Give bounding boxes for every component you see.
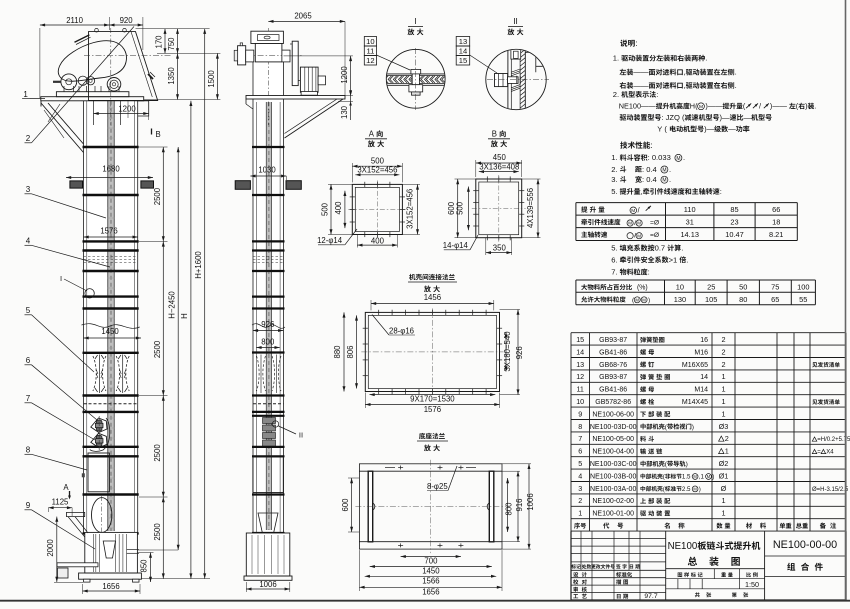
svg-text:14: 14 — [576, 347, 584, 356]
svg-text:M: M — [642, 297, 646, 302]
svg-text:M: M — [662, 167, 666, 173]
svg-text:M: M — [676, 156, 680, 162]
svg-text:—: — — [728, 125, 736, 134]
svg-text:2: 2 — [26, 134, 31, 143]
svg-text:A: A — [369, 130, 375, 139]
svg-text:8: 8 — [578, 422, 582, 431]
svg-text:1450: 1450 — [101, 327, 119, 336]
svg-text:,: , — [684, 68, 686, 77]
svg-text:31: 31 — [686, 218, 694, 227]
svg-text:85: 85 — [730, 205, 738, 214]
svg-text:GB93-87: GB93-87 — [599, 374, 627, 381]
svg-text:Ø1: Ø1 — [719, 471, 729, 480]
svg-text:NE100-00-00: NE100-00-00 — [773, 539, 837, 551]
svg-text:7: 7 — [578, 434, 582, 443]
svg-text:500: 500 — [455, 201, 464, 215]
svg-text:NE100: NE100 — [668, 541, 698, 552]
svg-text:4: 4 — [578, 471, 582, 480]
svg-text:14-φ14: 14-φ14 — [443, 241, 469, 250]
svg-text:750: 750 — [167, 37, 176, 51]
svg-text:1: 1 — [23, 90, 28, 99]
svg-text:H: H — [180, 313, 189, 319]
svg-text:2.5: 2.5 — [682, 486, 691, 493]
svg-text:=Ø: =Ø — [650, 232, 659, 239]
svg-text::: : — [635, 39, 637, 48]
svg-text:GB41-86: GB41-86 — [599, 387, 627, 394]
svg-text:130: 130 — [340, 105, 349, 119]
svg-text:3: 3 — [26, 185, 31, 194]
svg-text:105: 105 — [705, 295, 717, 304]
svg-text:806: 806 — [346, 345, 355, 358]
svg-text:130: 130 — [674, 295, 686, 304]
svg-text:II: II — [299, 431, 303, 440]
svg-text:1: 1 — [722, 397, 726, 406]
svg-text:2500: 2500 — [153, 523, 162, 541]
svg-text:14: 14 — [700, 374, 708, 381]
svg-text:): ) — [805, 102, 807, 111]
svg-text:1500: 1500 — [207, 70, 216, 88]
svg-text:,: , — [684, 81, 686, 90]
svg-text:M14: M14 — [694, 387, 708, 394]
svg-text:1.: 1. — [611, 153, 617, 162]
svg-text:1656: 1656 — [422, 587, 439, 596]
svg-text:16: 16 — [700, 337, 708, 344]
svg-text:Ø2: Ø2 — [719, 459, 729, 468]
svg-text:4X139=556: 4X139=556 — [526, 188, 535, 228]
svg-text:13: 13 — [459, 37, 467, 46]
svg-text:400: 400 — [371, 236, 385, 245]
svg-text:2: 2 — [722, 347, 726, 356]
svg-text:M: M — [635, 297, 639, 302]
svg-text:916: 916 — [515, 498, 524, 511]
svg-text:1.5: 1.5 — [682, 473, 691, 480]
svg-text:=: = — [817, 450, 821, 456]
svg-text:1200: 1200 — [340, 66, 349, 84]
svg-text:M: M — [693, 474, 697, 479]
svg-text:2: 2 — [722, 360, 726, 369]
svg-text:.: . — [683, 153, 685, 162]
svg-text:1576: 1576 — [424, 405, 441, 414]
svg-text:2500: 2500 — [153, 444, 162, 462]
svg-text:X4: X4 — [826, 450, 834, 456]
svg-text:.: . — [669, 165, 671, 174]
svg-text:NE100——: NE100—— — [619, 102, 657, 111]
svg-text:14: 14 — [459, 46, 467, 55]
svg-text:M14X45: M14X45 — [682, 399, 708, 406]
svg-text:2110: 2110 — [66, 16, 83, 25]
svg-text:1.: 1. — [613, 54, 619, 63]
svg-text:926: 926 — [261, 320, 274, 329]
svg-text:8.21: 8.21 — [769, 230, 783, 239]
svg-text:1: 1 — [722, 385, 726, 394]
svg-text:13: 13 — [576, 360, 584, 369]
svg-text:NE100-03D-00: NE100-03D-00 — [590, 424, 637, 431]
svg-text:(%): (%) — [637, 285, 648, 292]
svg-text:10: 10 — [576, 397, 584, 406]
svg-text:1030: 1030 — [258, 166, 276, 175]
svg-text:10.47: 10.47 — [725, 230, 744, 239]
svg-text:1: 1 — [722, 496, 726, 505]
svg-text:110: 110 — [684, 205, 696, 214]
svg-text:1: 1 — [578, 509, 582, 518]
svg-text:0.7: 0.7 — [655, 244, 666, 253]
svg-text:15: 15 — [459, 56, 467, 65]
svg-text:18: 18 — [772, 218, 780, 227]
svg-text::: : — [656, 90, 658, 99]
svg-text:.: . — [669, 175, 671, 184]
svg-text::: : — [648, 268, 650, 277]
svg-text:926: 926 — [515, 346, 524, 359]
svg-text:9: 9 — [26, 501, 31, 510]
svg-text:M: M — [637, 221, 641, 226]
svg-text:): ) — [692, 424, 694, 431]
svg-text:H−2450: H−2450 — [167, 291, 176, 319]
svg-text:H(: H( — [690, 102, 698, 111]
svg-text:): ) — [648, 297, 650, 304]
svg-text:NE100-05-00: NE100-05-00 — [592, 436, 634, 443]
svg-text:1: 1 — [722, 409, 726, 418]
svg-text:12: 12 — [366, 56, 374, 65]
svg-text:2065: 2065 — [294, 12, 312, 21]
svg-text:1450: 1450 — [422, 567, 440, 576]
svg-text::: : — [720, 187, 722, 196]
svg-text:7: 7 — [26, 394, 31, 403]
svg-text:: 0.033: : 0.033 — [648, 153, 671, 162]
svg-text:2.: 2. — [611, 165, 617, 174]
svg-text:: 0.4: : 0.4 — [642, 175, 657, 184]
svg-text:100: 100 — [797, 283, 809, 292]
svg-text:3: 3 — [578, 484, 582, 493]
svg-text:): ) — [712, 473, 714, 480]
svg-text:15: 15 — [576, 335, 584, 344]
svg-text:1006: 1006 — [526, 493, 535, 510]
svg-text:>1: >1 — [669, 255, 678, 264]
svg-text:M: M — [631, 208, 635, 214]
svg-text:M: M — [707, 474, 711, 479]
svg-text:GB68-76: GB68-76 — [599, 362, 627, 369]
svg-text:): ) — [699, 486, 701, 493]
svg-text:Ø: Ø — [721, 484, 727, 493]
svg-text:500: 500 — [320, 202, 329, 216]
svg-text:Y (: Y ( — [657, 125, 667, 134]
svg-text:5: 5 — [578, 459, 582, 468]
svg-text:50: 50 — [739, 283, 747, 292]
svg-text:1125: 1125 — [52, 498, 69, 507]
svg-text:): ) — [686, 461, 688, 468]
svg-text:3.: 3. — [611, 175, 617, 184]
svg-text:GB41-86: GB41-86 — [599, 349, 627, 356]
svg-text:1456: 1456 — [424, 293, 441, 302]
svg-text:NE100-01-00: NE100-01-00 — [592, 511, 634, 518]
svg-text:.: . — [705, 54, 707, 63]
svg-text:3X180=540: 3X180=540 — [503, 331, 512, 372]
svg-text:66: 66 — [772, 205, 780, 214]
svg-text:11: 11 — [366, 46, 374, 55]
svg-text:A: A — [63, 483, 69, 492]
svg-text:1656: 1656 — [102, 582, 119, 591]
svg-text:450: 450 — [493, 153, 507, 162]
svg-text:3X152=456: 3X152=456 — [357, 166, 397, 175]
svg-text:3X136=408: 3X136=408 — [479, 162, 519, 171]
svg-text:B: B — [492, 130, 497, 139]
svg-text:)——: )—— — [770, 102, 788, 111]
svg-text:1:50: 1:50 — [745, 580, 759, 589]
svg-text:5.: 5. — [611, 244, 617, 253]
svg-text:2500: 2500 — [153, 187, 162, 205]
svg-text:M: M — [662, 178, 666, 184]
svg-text:NE100-03A-00: NE100-03A-00 — [590, 486, 636, 493]
svg-text:M: M — [637, 233, 641, 238]
svg-text:H+1600: H+1600 — [194, 251, 203, 279]
svg-text:)—: )— — [704, 125, 715, 134]
svg-text:1576: 1576 — [100, 227, 117, 236]
svg-text:800: 800 — [504, 502, 513, 516]
svg-text:NE100-06-00: NE100-06-00 — [592, 411, 634, 418]
svg-text:.: . — [686, 255, 688, 264]
svg-text:1: 1 — [725, 447, 729, 456]
svg-text:2500: 2500 — [153, 340, 162, 358]
svg-text:—: — — [744, 113, 752, 122]
svg-text:/: / — [638, 207, 640, 215]
svg-text:4: 4 — [26, 237, 31, 246]
svg-text:23: 23 — [730, 218, 738, 227]
svg-text:7.: 7. — [611, 268, 617, 277]
svg-text:NE100-03B-00: NE100-03B-00 — [590, 473, 636, 480]
svg-text:920: 920 — [120, 16, 134, 25]
svg-text:I: I — [60, 274, 62, 283]
svg-text:6: 6 — [578, 447, 582, 456]
svg-text:700: 700 — [424, 557, 438, 566]
svg-text:8: 8 — [26, 446, 31, 455]
svg-text:2000: 2000 — [46, 539, 55, 557]
svg-text:NE100-02-00: NE100-02-00 — [592, 498, 634, 505]
svg-text:80: 80 — [739, 295, 747, 304]
svg-text:M16: M16 — [694, 349, 708, 356]
svg-text:I: I — [414, 17, 416, 26]
svg-text:GB93-87: GB93-87 — [599, 337, 627, 344]
svg-text:850: 850 — [140, 559, 149, 573]
svg-text:B: B — [156, 130, 161, 139]
svg-text:500: 500 — [371, 156, 385, 165]
svg-text:1566: 1566 — [422, 576, 439, 585]
svg-text:GB5782-86: GB5782-86 — [595, 399, 631, 406]
svg-text:)——: )—— — [705, 102, 723, 111]
svg-text:Ø3: Ø3 — [719, 422, 729, 431]
svg-text:10: 10 — [366, 37, 374, 46]
svg-text:9: 9 — [578, 409, 582, 418]
svg-text:6: 6 — [26, 356, 31, 365]
svg-text:.: . — [814, 102, 816, 111]
svg-text:1350: 1350 — [167, 67, 176, 85]
svg-text:.: . — [735, 68, 737, 77]
svg-text:2: 2 — [725, 434, 729, 443]
svg-text:——: —— — [633, 81, 649, 90]
svg-text:25: 25 — [707, 283, 715, 292]
svg-text:14.13: 14.13 — [680, 230, 699, 239]
svg-text:)—: )— — [720, 113, 731, 122]
svg-text:II: II — [513, 17, 518, 26]
svg-text:55: 55 — [799, 295, 807, 304]
svg-text:M: M — [693, 486, 697, 491]
svg-text:2: 2 — [722, 335, 726, 344]
svg-text:12: 12 — [576, 372, 584, 381]
svg-text:170: 170 — [155, 35, 164, 49]
svg-text:600: 600 — [341, 498, 350, 512]
svg-text:800: 800 — [261, 338, 275, 347]
svg-text:6.: 6. — [611, 255, 617, 264]
svg-text:8-φ25: 8-φ25 — [427, 482, 448, 491]
svg-text:1006: 1006 — [259, 580, 276, 589]
svg-text:97.7: 97.7 — [644, 593, 657, 600]
svg-text:M: M — [699, 104, 703, 110]
svg-text:,: , — [641, 187, 643, 196]
svg-text:——: —— — [633, 68, 649, 77]
svg-text:1680: 1680 — [102, 165, 120, 174]
svg-text:1: 1 — [722, 372, 726, 381]
svg-text:350: 350 — [493, 243, 507, 252]
svg-text:Ø=H-3.15/2.5: Ø=H-3.15/2.5 — [812, 487, 849, 493]
svg-text:75: 75 — [771, 283, 779, 292]
svg-text:,1: ,1 — [699, 473, 705, 480]
svg-text:: JZQ (: : JZQ ( — [661, 113, 685, 122]
svg-text:400: 400 — [334, 201, 343, 215]
svg-text:1200: 1200 — [118, 105, 136, 114]
svg-text:NE100-03C-00: NE100-03C-00 — [590, 461, 637, 468]
svg-text:.: . — [735, 81, 737, 90]
svg-text:65: 65 — [771, 295, 779, 304]
svg-text:M: M — [628, 221, 632, 226]
svg-text:=Ø: =Ø — [650, 220, 659, 227]
svg-text:1: 1 — [722, 509, 726, 518]
svg-text:.: . — [681, 244, 683, 253]
svg-text:: 0.4: : 0.4 — [642, 165, 657, 174]
svg-text:880: 880 — [333, 345, 342, 359]
svg-text:3X152=456: 3X152=456 — [405, 189, 414, 229]
svg-text:5.: 5. — [611, 187, 617, 196]
svg-text:NE100-04-00: NE100-04-00 — [592, 449, 634, 456]
svg-text:M16X65: M16X65 — [682, 362, 708, 369]
svg-text:12-φ14: 12-φ14 — [317, 236, 343, 245]
svg-text:5: 5 — [26, 306, 31, 315]
svg-text:10: 10 — [676, 283, 684, 292]
svg-text:11: 11 — [576, 385, 583, 394]
svg-text:28-φ16: 28-φ16 — [389, 327, 414, 336]
svg-text:9X170=1530: 9X170=1530 — [410, 395, 455, 404]
svg-text:2.: 2. — [613, 90, 619, 99]
svg-text:2: 2 — [578, 496, 582, 505]
svg-text::: : — [650, 141, 652, 150]
